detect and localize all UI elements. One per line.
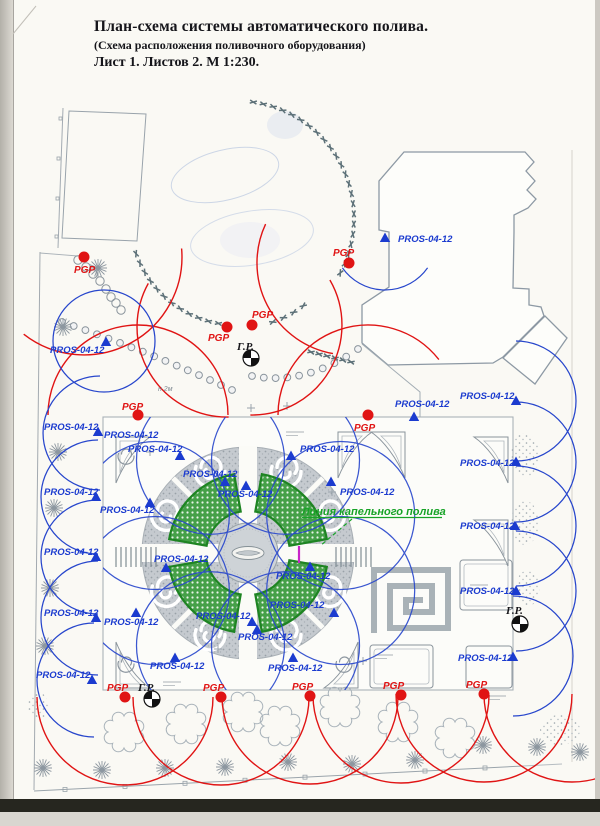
- planting-patch: [511, 433, 539, 477]
- hedge-mark: [250, 100, 257, 104]
- rotor-head-marker: [363, 410, 374, 421]
- stepping-stone: [196, 372, 203, 379]
- hydrant-label: Г.Р.: [137, 682, 155, 694]
- rotor-head-marker: [79, 252, 90, 263]
- hedge-mark: [269, 104, 276, 109]
- deciduous-tree-icon: [104, 712, 144, 752]
- rotor-head-label: PGP: [354, 423, 375, 434]
- rotor-head-label: PGP: [252, 310, 273, 321]
- spray-head-label: PROS-04-12: [460, 586, 515, 597]
- hedge-mark: [280, 315, 288, 321]
- hedge-mark: [142, 269, 148, 276]
- hedge-mark: [352, 210, 355, 217]
- spray-head-label: PROS-04-12: [50, 345, 105, 356]
- conifer-tree-icon: [279, 753, 297, 771]
- spray-head-label: PROS-04-12: [150, 661, 205, 672]
- drip-line-label: Линия капельного полива: [301, 506, 446, 518]
- spray-head-label: PROS-04-12: [460, 391, 515, 402]
- rotor-head-marker: [222, 322, 233, 333]
- rotor-head-label: PGP: [203, 683, 224, 694]
- spray-head-label: PROS-04-12: [238, 632, 293, 643]
- spray-head-label: PROS-04-12: [44, 422, 99, 433]
- deciduous-tree-icon: [166, 704, 206, 744]
- spray-head-marker: [409, 412, 419, 422]
- rotor-head-label: PGP: [208, 333, 229, 344]
- spray-head-label: PROS-04-12: [104, 617, 159, 628]
- hedge-mark: [346, 180, 351, 187]
- hedge-mark: [351, 231, 355, 238]
- spray-head-label: PROS-04-12: [44, 608, 99, 619]
- hydrant-marker: [152, 699, 160, 707]
- hydrant-marker: [512, 616, 528, 632]
- hedge-mark: [343, 170, 349, 178]
- hedge-mark: [186, 311, 194, 317]
- stepping-stone: [343, 353, 350, 360]
- hedge-mark: [205, 319, 212, 324]
- plan-title: План-схема системы автоматического полив…: [94, 18, 584, 36]
- hedge-mark: [160, 293, 167, 300]
- hedge-mark: [290, 309, 297, 315]
- hedge-height-note: н 2м: [158, 386, 173, 393]
- stepping-stone: [229, 387, 236, 394]
- hydrant-marker: [520, 624, 528, 632]
- hedge-mark: [349, 190, 354, 197]
- rotor-head-marker: [344, 258, 355, 269]
- hydrant-label: Г.Р.: [505, 605, 523, 617]
- rotor-head-label: PGP: [107, 683, 128, 694]
- hedge-mark: [133, 250, 138, 257]
- spray-head-label: PROS-04-12: [395, 399, 450, 410]
- conifer-tree-icon: [49, 443, 67, 461]
- hedge-mark: [177, 306, 184, 312]
- hedge-mark: [137, 259, 143, 267]
- hedge-mark: [349, 241, 354, 248]
- spray-head-label: PROS-04-12: [276, 571, 331, 582]
- hedge-mark: [300, 302, 307, 309]
- stepping-stone: [82, 327, 89, 334]
- scanned-plan-page: PROS-04-12PROS-04-12PROS-04-12PROS-04-12…: [0, 0, 600, 826]
- hedge-mark: [338, 161, 344, 169]
- rotor-head-label: PGP: [292, 682, 313, 693]
- hedge-mark: [153, 285, 160, 292]
- conifer-tree-icon: [216, 758, 234, 776]
- spray-head-label: PROS-04-12: [460, 458, 515, 469]
- rotor-head-label: PGP: [333, 248, 354, 259]
- spray-head-label: PROS-04-12: [128, 444, 183, 455]
- hedge-mark: [305, 122, 312, 129]
- planting-patch: [540, 715, 580, 745]
- spray-head-label: PROS-04-12: [270, 600, 325, 611]
- spray-head-label: PROS-04-12: [268, 663, 323, 674]
- deciduous-tree-icon: [378, 702, 418, 742]
- spray-head-label: PROS-04-12: [100, 505, 155, 516]
- stepping-stone: [184, 367, 191, 374]
- irrigation-plan-drawing: PROS-04-12PROS-04-12PROS-04-12PROS-04-12…: [0, 0, 600, 826]
- stepping-stone: [355, 346, 362, 353]
- shrub: [96, 277, 104, 285]
- hedge-mark: [333, 152, 339, 159]
- shrub: [107, 293, 115, 301]
- hedge-mark: [337, 269, 343, 277]
- stepping-stone: [249, 373, 256, 380]
- spray-head-label: PROS-04-12: [104, 430, 159, 441]
- spray-head-label: PROS-04-12: [196, 611, 251, 622]
- rotor-head-label: PGP: [74, 265, 95, 276]
- spray-head-label: PROS-04-12: [183, 469, 238, 480]
- shrub: [117, 306, 125, 314]
- deciduous-tree-icon: [260, 706, 300, 746]
- spray-head-label: PROS-04-12: [458, 653, 513, 664]
- stepping-stone: [207, 377, 214, 384]
- deciduous-tree-icon: [320, 687, 360, 727]
- hedge-mark: [305, 122, 312, 129]
- stepping-stone: [260, 374, 267, 381]
- conifer-tree-icon: [406, 751, 424, 769]
- hedge-mark: [351, 200, 355, 207]
- conifer-tree-icon: [34, 759, 52, 777]
- spray-head-label: PROS-04-12: [218, 489, 273, 500]
- rotor-head-marker: [247, 320, 258, 331]
- conifer-tree-icon: [93, 761, 111, 779]
- spray-head-label: PROS-04-12: [36, 670, 91, 681]
- spray-head-label: PROS-04-12: [340, 487, 395, 498]
- hedge-mark: [315, 352, 322, 357]
- rotor-head-label: PGP: [122, 402, 143, 413]
- hedge-mark: [186, 311, 194, 317]
- stepping-stone: [173, 362, 180, 369]
- hedge-mark: [160, 293, 167, 300]
- title-block: План-схема системы автоматического полив…: [94, 18, 584, 71]
- hedge-mark: [323, 354, 330, 359]
- hedge-mark: [347, 360, 354, 365]
- hedge-mark: [177, 306, 184, 312]
- hedge-mark: [320, 136, 327, 143]
- rotor-head-label: PGP: [383, 681, 404, 692]
- stepping-stone: [128, 344, 135, 351]
- stepping-stone: [162, 358, 169, 365]
- spray-head-label: PROS-04-12: [398, 234, 453, 245]
- stepping-stone: [308, 369, 315, 376]
- hedge-mark: [260, 102, 267, 107]
- stepping-stone: [272, 375, 279, 382]
- spray-head-label: PROS-04-12: [154, 554, 209, 565]
- rotor-head-label: PGP: [466, 680, 487, 691]
- hedge-mark: [215, 321, 222, 325]
- hedge-mark: [313, 129, 320, 136]
- sheet-and-scale: Лист 1. Листов 2. М 1:230.: [94, 55, 584, 71]
- hedge-mark: [195, 315, 202, 320]
- plan-subtitle: (Схема расположения поливочного оборудов…: [94, 38, 584, 53]
- spray-head-label: PROS-04-12: [460, 521, 515, 532]
- conifer-tree-icon: [156, 759, 174, 777]
- shrub: [102, 285, 110, 293]
- hydrant-label: Г.Р.: [236, 341, 254, 353]
- hydrant-marker: [251, 358, 259, 366]
- conifer-tree-icon: [528, 738, 546, 756]
- hedge-mark: [337, 269, 343, 277]
- hedge-mark: [313, 129, 320, 136]
- hedge-mark: [327, 144, 334, 151]
- stepping-stone: [319, 365, 326, 372]
- spray-head-label: PROS-04-12: [44, 487, 99, 498]
- conifer-tree-icon: [571, 743, 589, 761]
- spray-head-label: PROS-04-12: [300, 444, 355, 455]
- hedge-mark: [307, 350, 314, 355]
- stepping-stone: [117, 340, 124, 347]
- spray-head-label: PROS-04-12: [44, 547, 99, 558]
- hedge-mark: [352, 221, 356, 228]
- stepping-stone: [296, 372, 303, 379]
- deciduous-tree-icon: [223, 692, 263, 732]
